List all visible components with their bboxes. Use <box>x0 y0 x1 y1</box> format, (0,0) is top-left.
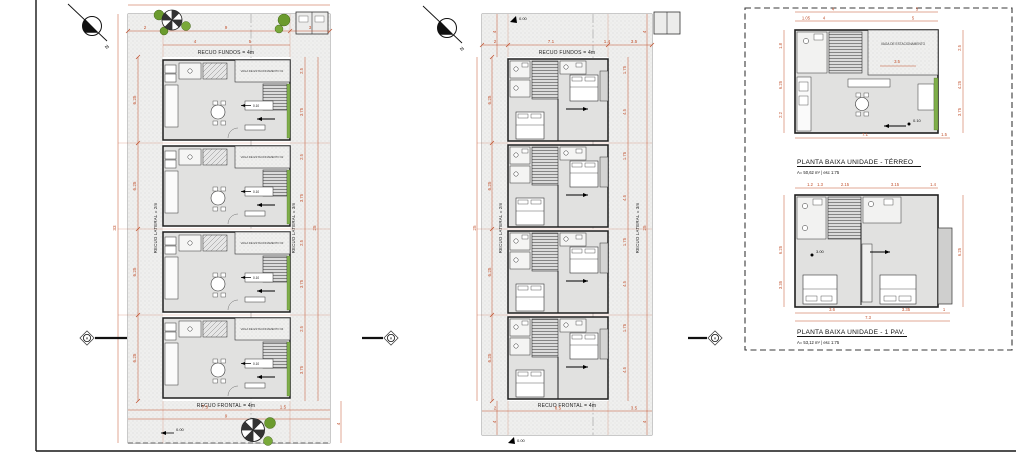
recuo-fundos-label: RECUO FUNDOS = 4m <box>198 50 255 56</box>
dim-label: 3.5 <box>894 59 900 64</box>
utility-box <box>654 12 680 34</box>
site-plan-terreo: VAGA DE ESTACIONAMENTO 01 VAGA DE ESTACI… <box>68 4 398 446</box>
dim-label: 1.75 <box>622 323 627 332</box>
dim-label: 25 <box>472 225 477 231</box>
dim-label: 4.25 <box>957 80 962 89</box>
dim-label: 2 <box>494 39 497 44</box>
plan-title-terreo: PLANTA BAIXA UNIDADE - TÉRREO <box>797 157 913 166</box>
dim-label: 1.4 <box>930 182 936 187</box>
dim-label: 4.5 <box>622 194 627 200</box>
dim-label: 3.35 <box>902 307 911 312</box>
dim-label: 2.5 <box>957 44 962 50</box>
recuo-frontal-label: RECUO FRONTAL = 4m <box>538 403 596 409</box>
dim-label: 8.5 <box>555 406 562 411</box>
dim-label: 6.25 <box>487 181 492 190</box>
svg-text:0.00: 0.00 <box>519 16 528 21</box>
dim-label: 1.8 <box>778 42 783 48</box>
dim-label: 25 <box>642 225 647 231</box>
dim-label: 1.4 <box>604 39 611 44</box>
dim-label: 1.05 <box>802 16 811 21</box>
dim-label: 7.3 <box>865 315 871 320</box>
dim-label: 2 <box>144 25 147 30</box>
dim-label: 4 <box>492 420 497 423</box>
dim-label: 2 <box>494 406 497 411</box>
dim-label: 4.5 <box>622 366 627 372</box>
dim-label: 1.5 <box>280 405 287 410</box>
unit-detail-panel: VAGA DE ESTACIONAMENTO 3.5 0.10 <box>745 7 1012 351</box>
dim-label: 2.5 <box>299 239 304 245</box>
dim-label: 2.5 <box>299 325 304 331</box>
utility-box <box>296 12 328 34</box>
dim-label: 3.75 <box>299 365 304 374</box>
recuo-lateral-esq-label: RECUO LATERAL = 2m <box>153 202 158 253</box>
plan-area-terreo: A= 50,62 m² | esc 1:75 <box>797 170 840 175</box>
dim-label: 4 <box>194 39 197 44</box>
drawing-canvas: 0.10 <box>0 0 1024 457</box>
recuo-lateral-dir-label: RECUO LATERAL = 3m <box>291 202 296 253</box>
dim-label: 3.75 <box>299 107 304 116</box>
dim-label: 3 <box>309 25 312 30</box>
dim-label: 7.1 <box>862 132 868 137</box>
dim-label: 2.15 <box>841 182 850 187</box>
recuo-fundos-label: RECUO FUNDOS = 4m <box>539 50 596 56</box>
dim-label: 6.25 <box>957 247 962 256</box>
dim-label: 6.25 <box>487 267 492 276</box>
dim-label: 3.75 <box>299 193 304 202</box>
dim-label: 7.1 <box>548 39 555 44</box>
dim-label: 6.25 <box>487 95 492 104</box>
dim-label: 25 <box>312 225 317 231</box>
level-label: 3.00 <box>816 249 825 254</box>
dim-label: 6.25 <box>132 181 137 190</box>
dim-label: 3.35 <box>778 280 783 289</box>
plan-area-pav: A= 53,12 m² | esc 1:75 <box>797 340 840 345</box>
parking-label: VAGA DE ESTACIONAMENTO 04 <box>241 327 284 331</box>
dim-label: 1.75 <box>622 237 627 246</box>
recuo-lateral-dir-label: RECUO LATERAL = 3m <box>635 202 640 253</box>
dim-label: 1.2 <box>807 182 813 187</box>
dim-label: 6.25 <box>132 267 137 276</box>
dim-label: 33 <box>112 225 117 231</box>
plan-title-pav: PLANTA BAIXA UNIDADE - 1 PAV. <box>797 329 905 336</box>
parking-label: VAGA DE ESTACIONAMENTO 02 <box>241 155 284 159</box>
dim-label: 5 <box>249 39 252 44</box>
dim-label: 3.5 <box>631 39 638 44</box>
dim-label: 1.3 <box>817 182 823 187</box>
dim-label: 4.5 <box>622 280 627 286</box>
dim-label: 6.25 <box>487 353 492 362</box>
dim-label: 3.75 <box>957 107 962 116</box>
parking-label: VAGA DE ESTACIONAMENTO 03 <box>241 241 284 245</box>
dim-label: 1.5 <box>941 132 947 137</box>
dim-label: 3.5 <box>631 406 638 411</box>
level-label: 0.10 <box>913 118 922 123</box>
dim-label: 3.15 <box>891 182 900 187</box>
dim-label: 9 <box>225 414 228 419</box>
dim-label: 4 <box>642 30 647 33</box>
site-plan-pav: 0.00 4 4 2 7.1 1.4 3.5 RECUO FUNDOS = 4m… <box>423 6 722 444</box>
svg-text:0.00: 0.00 <box>517 438 526 443</box>
level-marker: 0.00 <box>508 437 526 444</box>
architectural-drawing-page: 0.10 <box>0 0 1024 457</box>
dim-label: 1.75 <box>622 65 627 74</box>
dim-label: 3.75 <box>299 279 304 288</box>
dim-label: 1.75 <box>622 151 627 160</box>
dim-label: 6.25 <box>778 80 783 89</box>
dim-label: 4.5 <box>622 108 627 114</box>
dim-label: 9 <box>225 25 228 30</box>
dim-label: 2.2 <box>778 111 783 117</box>
dim-label: 4 <box>642 420 647 423</box>
parking-label: VAGA DE ESTACIONAMENTO <box>881 42 926 46</box>
dim-label: 6.25 <box>132 95 137 104</box>
dim-label: 7.5 <box>202 405 209 410</box>
dim-label: 4 <box>492 30 497 33</box>
dim-label: 2.5 <box>299 153 304 159</box>
dim-label: 3.6 <box>829 307 835 312</box>
dim-label: 2.5 <box>299 67 304 73</box>
svg-text:0.00: 0.00 <box>176 427 185 432</box>
dim-label: 6.25 <box>132 353 137 362</box>
dim-label: 4 <box>336 422 341 425</box>
recuo-lateral-esq-label: RECUO LATERAL = 2m <box>498 202 503 253</box>
parking-label: VAGA DE ESTACIONAMENTO 01 <box>241 69 284 73</box>
dim-label: 6.25 <box>778 245 783 254</box>
